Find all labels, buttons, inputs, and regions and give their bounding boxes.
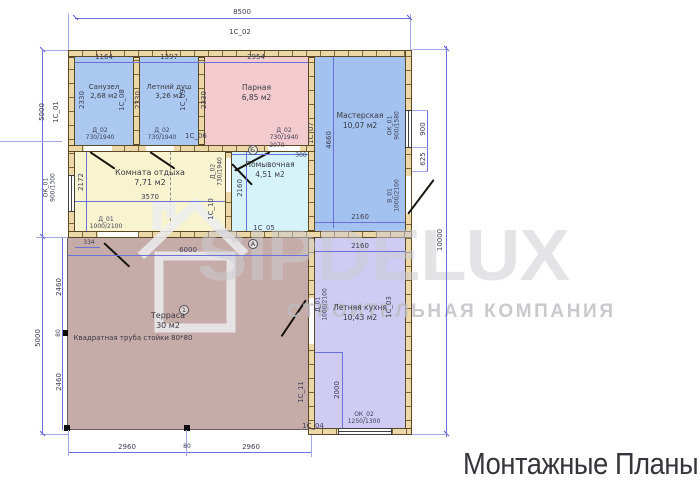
terrace-note: Квадратная труба стойки 80*80 bbox=[58, 334, 208, 343]
dim-otdyha-width: 3570 bbox=[141, 194, 159, 201]
ext-line bbox=[36, 237, 68, 238]
room-label-parnaya: Парная 6,85 м2 bbox=[205, 83, 308, 103]
dim-line-kuhnya-depth bbox=[342, 352, 343, 428]
dim-line-otdyha-height bbox=[86, 152, 87, 231]
panel-label-1c11: 1С_11 bbox=[297, 372, 305, 412]
floor-plan-sheet: SIPDELUX СТРОИТЕЛЬНАЯ КОМПАНИЯ 8500 1С_0… bbox=[0, 0, 700, 494]
dim-terrace-width: 6000 bbox=[179, 247, 197, 254]
dim-line-kuhnya-width bbox=[315, 251, 405, 252]
room-label-terrasa: Терраса 30 м2 bbox=[108, 311, 228, 332]
door-gap-pomyv bbox=[226, 158, 231, 192]
dim-post: 80 bbox=[183, 444, 191, 450]
dim-height-right: 10000 bbox=[436, 220, 444, 260]
dim-terrace-b2: 2960 bbox=[242, 444, 260, 451]
panel-label-1c10: 1С_10 bbox=[207, 189, 215, 229]
terrace-post bbox=[184, 425, 190, 431]
dim-line-total-width bbox=[75, 18, 410, 19]
page-title: Монтажные Планы bbox=[463, 446, 698, 482]
dim-line-right-window bbox=[427, 110, 428, 172]
room-label-pomyvochnaya: Помывочная 4,51 м2 bbox=[232, 160, 308, 180]
dim-kuhnya-depth: 2000 bbox=[333, 370, 341, 410]
door-label-d02: Д_02730/1940 bbox=[270, 128, 299, 142]
ext-line bbox=[42, 50, 68, 51]
dim-line-terrace-top bbox=[68, 255, 308, 256]
dim-line-right-height bbox=[446, 46, 447, 437]
dim-kuhnya-width: 2160 bbox=[351, 243, 369, 250]
window-label-ok01-left: ОК_01900/1300 bbox=[44, 166, 57, 210]
dim-line-mast-height bbox=[333, 57, 334, 228]
axis-marker-b: Б bbox=[248, 145, 258, 155]
window-left bbox=[68, 175, 75, 212]
dim-line-top-rooms bbox=[75, 62, 308, 63]
dim-total-width: 8500 bbox=[233, 9, 251, 16]
dim-dush-width: 1397 bbox=[160, 54, 178, 61]
dim-line-kuhnya-depth-h bbox=[315, 352, 342, 353]
dim-pomyv-width: 2070 bbox=[269, 143, 284, 149]
door-label-d02: Д_02730/1940 bbox=[86, 128, 115, 142]
door-gap-otdyha bbox=[98, 232, 138, 237]
dim-height-upper: 5000 bbox=[38, 92, 46, 132]
panel-label-1c02: 1С_02 bbox=[229, 29, 251, 36]
dim-terrace-post: 80 bbox=[55, 313, 63, 353]
ext-line bbox=[412, 49, 448, 50]
wall-top bbox=[68, 50, 412, 57]
ext-line bbox=[68, 14, 69, 50]
ext-line bbox=[68, 430, 69, 456]
window-right bbox=[405, 110, 412, 148]
dim-parnaya-width: 2954 bbox=[247, 54, 265, 61]
dim-pomyv-offset: 300 bbox=[295, 153, 306, 159]
panel-label-1c01: 1С_01 bbox=[52, 92, 60, 132]
room-label-otdyha: Комната отдыха 7,71 м2 bbox=[75, 168, 225, 189]
room-label-dush: Летний душ 3,26 м2 bbox=[140, 83, 198, 101]
ext-line bbox=[311, 435, 312, 457]
dim-height-lower: 5000 bbox=[34, 318, 42, 358]
dim-masterskaya-width: 2160 bbox=[351, 214, 369, 221]
dim-terrace-offset: 334 bbox=[83, 240, 94, 246]
dim-terrace-b1: 2960 bbox=[118, 444, 136, 451]
door-label-v01: В_011000/2100 bbox=[388, 174, 401, 218]
panel-label-1c05: 1С_05 bbox=[253, 225, 275, 232]
door-label-d01: Д_011000/2100 bbox=[90, 217, 123, 231]
panel-label-1c07: 1С_07 bbox=[307, 113, 315, 153]
door-label-d02: Д_02730/1940 bbox=[148, 128, 177, 142]
window-kitchen bbox=[338, 428, 392, 435]
dim-window-right-offset: 625 bbox=[419, 139, 427, 179]
dim-line-mast-width bbox=[315, 222, 405, 223]
axis-marker-a: А bbox=[248, 239, 258, 249]
dim-terrace-h2: 2460 bbox=[55, 362, 63, 402]
ext-line bbox=[0, 141, 62, 142]
room-label-sanuzel: Санузел 2,68 м2 bbox=[75, 83, 133, 101]
ext-line bbox=[412, 434, 448, 435]
dim-line-terrace-bottom bbox=[68, 452, 312, 453]
door-gap-sanuzel bbox=[84, 146, 112, 151]
dim-sanuzel-width: 1164 bbox=[95, 54, 113, 61]
panel-label-1c04: 1С_04 bbox=[302, 423, 324, 430]
room-label-kuhnya: Летняя кухня 10,43 м2 bbox=[315, 303, 405, 323]
terrace-post bbox=[64, 425, 70, 431]
dim-terrace-h1: 2460 bbox=[55, 267, 63, 307]
window-label-ok02: ОК_021250/1300 bbox=[348, 412, 381, 426]
dim-line-terrace-off bbox=[75, 247, 100, 248]
dim-line-otdyha-width bbox=[75, 201, 225, 202]
room-label-masterskaya: Мастерская 10,07 м2 bbox=[315, 111, 405, 131]
panel-label-1c06: 1С_06 bbox=[185, 133, 207, 140]
